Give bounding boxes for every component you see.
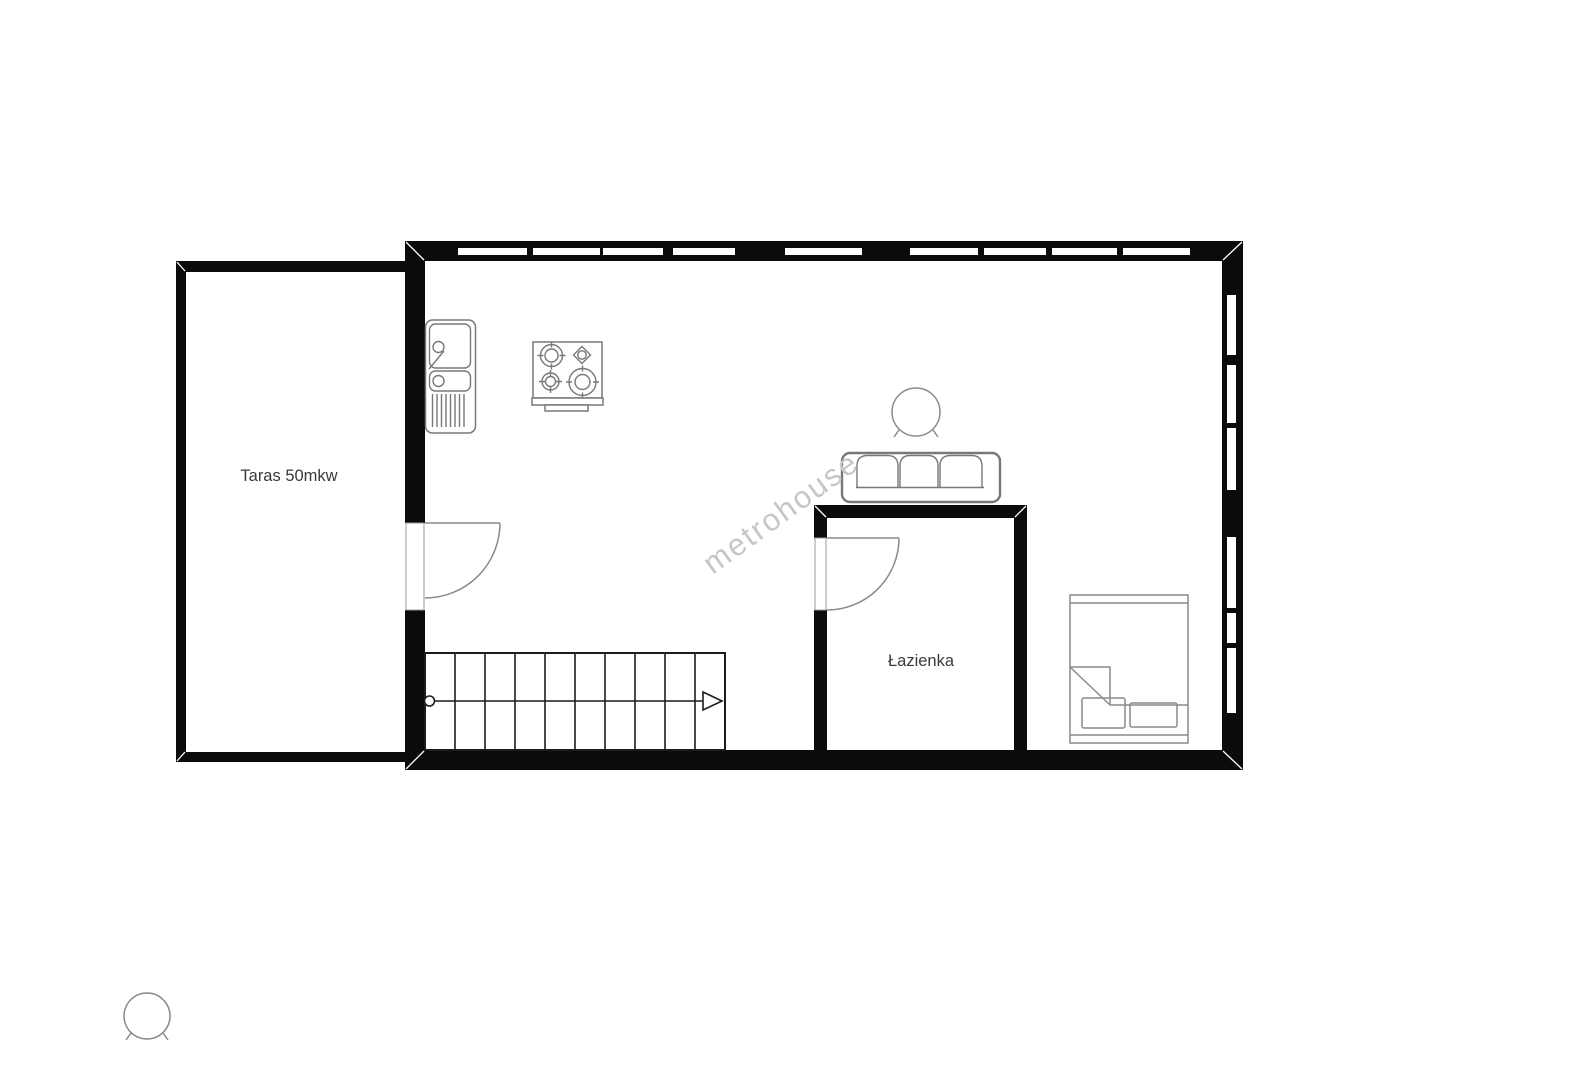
entry-door-swing-icon <box>406 523 500 610</box>
terrace-label: Taras 50mkw <box>240 467 337 485</box>
detached-round-table-icon <box>124 993 170 1040</box>
sofa-icon <box>842 453 1000 502</box>
stairs-icon <box>425 653 726 750</box>
bathroom-walls <box>814 505 1027 752</box>
stove-icon <box>532 342 603 412</box>
bathroom-door-swing-icon <box>815 538 899 610</box>
terrace-walls <box>176 261 406 762</box>
round-table-icon <box>892 388 940 437</box>
kitchen-sink-icon <box>426 320 476 433</box>
bathroom-label: Łazienka <box>888 652 955 670</box>
bed-icon <box>1070 595 1188 743</box>
floor-plan-canvas: Taras 50mkw Łazienka metrohouse <box>0 0 1581 1080</box>
